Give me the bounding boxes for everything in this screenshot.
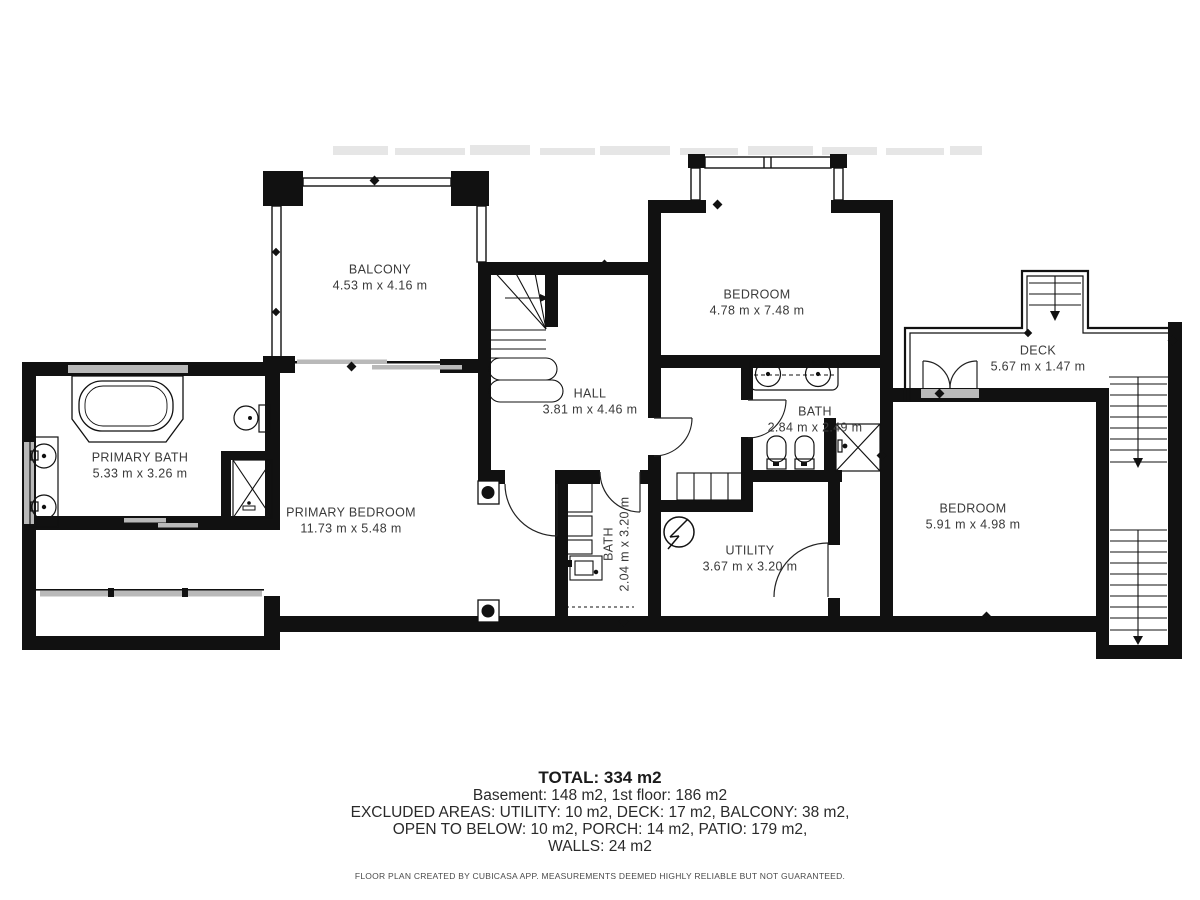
room-label-primary-bath: PRIMARY BATH 5.33 m x 3.26 m xyxy=(92,451,189,482)
room-name: PRIMARY BEDROOM xyxy=(286,506,416,522)
corridor-stairs xyxy=(677,473,744,500)
toilet-primary xyxy=(234,405,270,432)
room-dims: 5.33 m x 3.26 m xyxy=(92,466,189,482)
total-area: TOTAL: 334 m2 xyxy=(0,768,1200,787)
columns xyxy=(478,481,499,622)
floors-area: Basement: 148 m2, 1st floor: 186 m2 xyxy=(0,787,1200,804)
room-dims: 3.81 m x 4.46 m xyxy=(543,402,638,418)
room-name: BALCONY xyxy=(333,263,428,279)
room-label-hall: HALL 3.81 m x 4.46 m xyxy=(543,387,638,418)
deck-outline xyxy=(905,271,1168,402)
room-dims: 2.04 m x 3.20 m xyxy=(617,497,633,592)
room-label-bedroom-bottom: BEDROOM 5.91 m x 4.98 m xyxy=(926,502,1021,533)
room-dims: 3.67 m x 3.20 m xyxy=(703,559,798,575)
room-dims: 2.84 m x 2.49 m xyxy=(768,420,863,436)
right-staircase xyxy=(1109,377,1168,645)
floor-plan-drawing xyxy=(0,0,1200,760)
room-name: UTILITY xyxy=(703,544,798,560)
room-name: PRIMARY BATH xyxy=(92,451,189,467)
area-summary: TOTAL: 334 m2 Basement: 148 m2, 1st floo… xyxy=(0,768,1200,855)
room-name: BATH xyxy=(768,405,863,421)
electrical-panel-icon xyxy=(664,517,694,549)
room-name: HALL xyxy=(543,387,638,403)
walls-area: WALLS: 24 m2 xyxy=(0,838,1200,855)
room-dims: 4.53 m x 4.16 m xyxy=(333,278,428,294)
room-label-bath: BATH 2.84 m x 2.49 m xyxy=(768,405,863,436)
room-dims: 4.78 m x 7.48 m xyxy=(710,303,805,319)
attribution-note: FLOOR PLAN CREATED BY CUBICASA APP. MEAS… xyxy=(0,871,1200,881)
room-label-balcony: BALCONY 4.53 m x 4.16 m xyxy=(333,263,428,294)
room-name: DECK xyxy=(991,344,1086,360)
room-label-bath-small: BATH 2.04 m x 3.20 m xyxy=(602,497,633,592)
room-name: BEDROOM xyxy=(710,288,805,304)
bathtub xyxy=(72,376,183,442)
excluded-areas-2: OPEN TO BELOW: 10 m2, PORCH: 14 m2, PATI… xyxy=(0,821,1200,838)
room-name: BEDROOM xyxy=(926,502,1021,518)
room-name: BATH xyxy=(602,497,618,592)
room-label-deck: DECK 5.67 m x 1.47 m xyxy=(991,344,1086,375)
room-dims: 5.67 m x 1.47 m xyxy=(991,359,1086,375)
deck-stairs xyxy=(1029,276,1081,321)
excluded-areas-1: EXCLUDED AREAS: UTILITY: 10 m2, DECK: 17… xyxy=(0,804,1200,821)
ghost-patio-band xyxy=(333,145,982,155)
room-label-primary-bedroom: PRIMARY BEDROOM 11.73 m x 5.48 m xyxy=(286,506,416,537)
toilets-pair xyxy=(767,436,814,469)
porch-railing xyxy=(691,157,843,200)
room-dims: 5.91 m x 4.98 m xyxy=(926,517,1021,533)
room-label-bedroom-top: BEDROOM 4.78 m x 7.48 m xyxy=(710,288,805,319)
room-dims: 11.73 m x 5.48 m xyxy=(286,521,416,537)
floor-plan-page: BALCONY 4.53 m x 4.16 m HALL 3.81 m x 4.… xyxy=(0,0,1200,900)
room-label-utility: UTILITY 3.67 m x 3.20 m xyxy=(703,544,798,575)
